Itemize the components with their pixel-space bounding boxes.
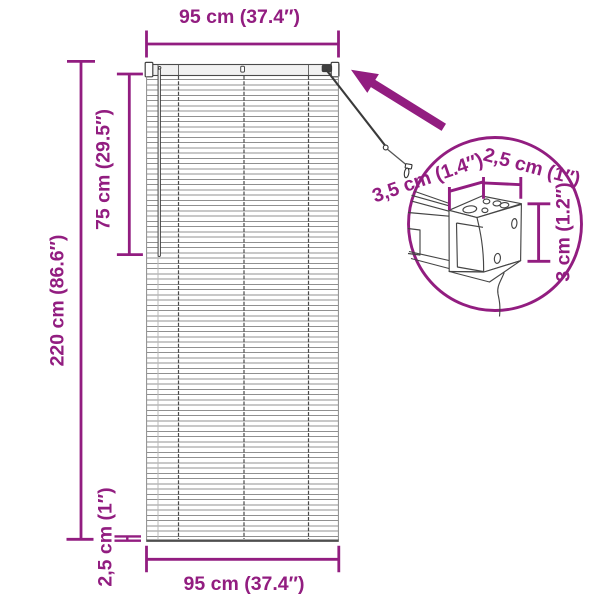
svg-text:75 cm (29.5″): 75 cm (29.5″)	[92, 109, 114, 230]
svg-text:95 cm (37.4″): 95 cm (37.4″)	[184, 573, 305, 595]
svg-text:2,5 cm (1″): 2,5 cm (1″)	[94, 487, 116, 586]
svg-text:3 cm (1.2″): 3 cm (1.2″)	[553, 182, 575, 281]
svg-text:95 cm (37.4″): 95 cm (37.4″)	[179, 6, 300, 28]
svg-text:220 cm (86.6″): 220 cm (86.6″)	[46, 235, 68, 367]
